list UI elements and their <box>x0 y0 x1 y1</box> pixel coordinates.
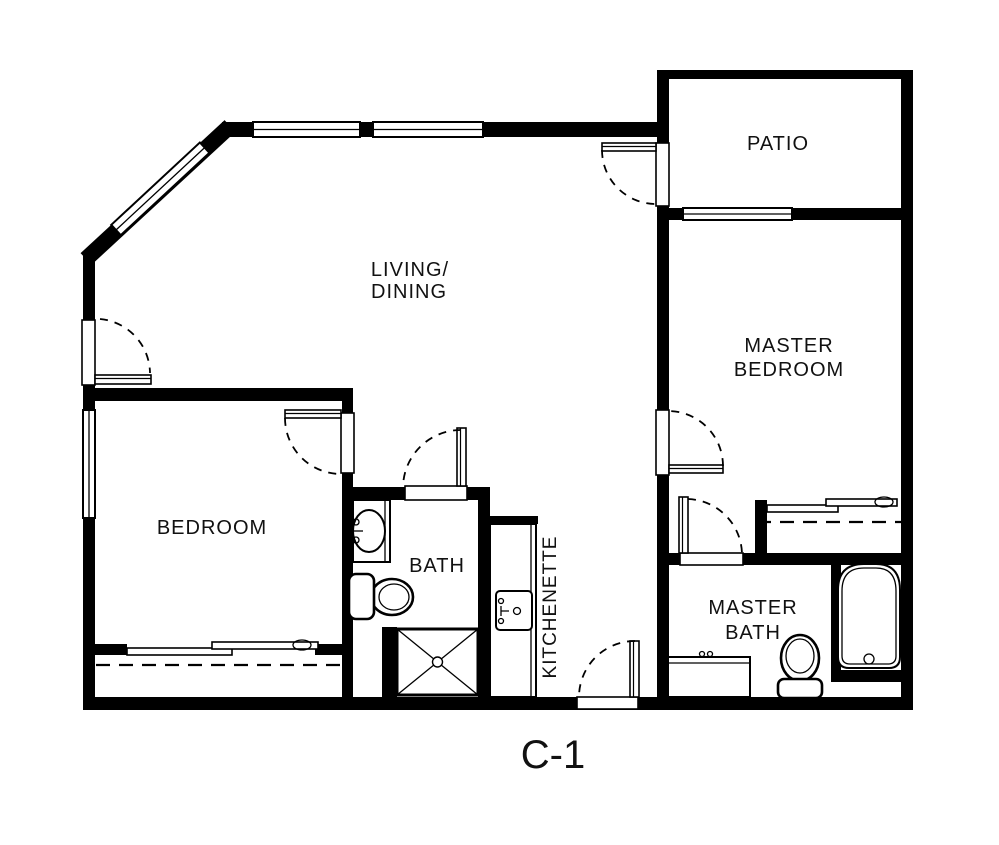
kitchenette-sink-icon <box>496 591 532 630</box>
room-label-master-bath-line1: MASTER <box>708 597 797 619</box>
floor-plan-drawing: LIVING/ DINING PATIO MASTER BEDROOM BEDR… <box>0 0 999 840</box>
bedroom-closet-stub-right <box>315 644 342 655</box>
left-wall-lower <box>83 518 95 710</box>
master-vanity <box>668 652 750 698</box>
room-label-master-bath-line2: BATH <box>725 622 781 644</box>
tub-bottom-wall <box>831 670 913 682</box>
room-label-patio: PATIO <box>747 133 809 155</box>
bath-sink-icon <box>353 510 385 552</box>
right-wall <box>901 70 913 710</box>
bath-right-wall <box>478 487 490 697</box>
bedroom-top-wall <box>83 388 353 401</box>
bedroom-closet-stub-left <box>95 644 127 655</box>
shower-icon <box>397 629 478 695</box>
plan-code-label: C-1 <box>521 733 585 777</box>
sliding-door-panel <box>212 642 318 649</box>
window-top-1 <box>253 122 360 137</box>
shower-stub-wall <box>382 627 397 697</box>
window-patio <box>683 208 792 220</box>
room-label-bedroom: BEDROOM <box>157 517 267 539</box>
sliding-door-panel <box>826 499 897 506</box>
floor-plan-page: LIVING/ DINING PATIO MASTER BEDROOM BEDR… <box>0 0 999 840</box>
bath-toilet-icon <box>349 574 413 619</box>
window-top-2 <box>373 122 483 137</box>
bathtub-icon <box>838 564 900 668</box>
master-toilet-icon <box>778 635 822 698</box>
patio-top-wall <box>657 70 913 79</box>
room-label-living-line2: DINING <box>371 281 447 303</box>
window-bedroom <box>83 410 95 518</box>
room-label-kitchenette: KITCHENETTE <box>540 536 561 679</box>
kitchenette-top-stub <box>490 516 538 524</box>
master-closet-stub <box>755 500 767 557</box>
shower-drain <box>433 657 443 667</box>
room-label-master-bedroom-line2: BEDROOM <box>734 359 844 381</box>
room-label-bath: BATH <box>409 555 465 577</box>
left-wall-upper <box>83 252 95 320</box>
room-label-living-line1: LIVING/ <box>371 259 449 281</box>
room-label-master-bedroom-line1: MASTER <box>744 335 833 357</box>
